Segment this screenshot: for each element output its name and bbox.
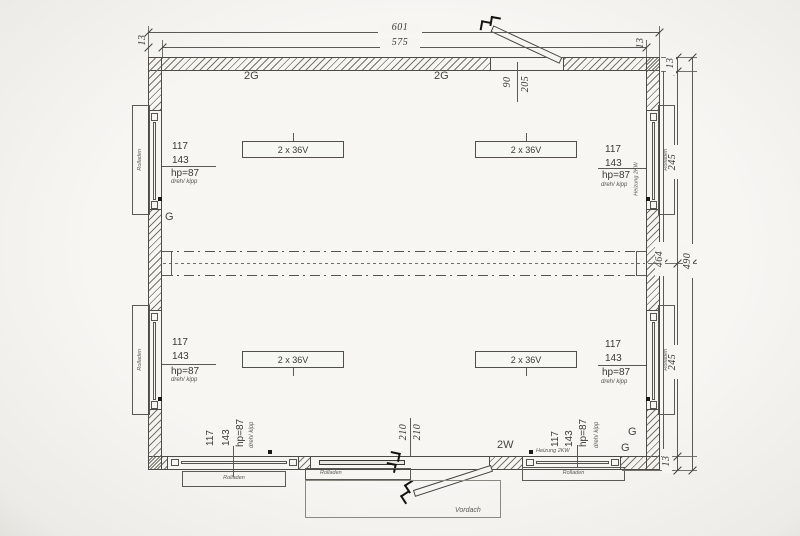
light-upper-right: 2 x 36V (475, 141, 577, 158)
window-glazing (652, 322, 655, 400)
rolladen-box-bottom-door: Rolladen (305, 468, 411, 480)
window-cap (650, 313, 657, 321)
window-parapet-label: hp=87 (602, 368, 630, 378)
window-type-label: dreh/ kipp (171, 377, 197, 383)
parapet-line (598, 365, 646, 366)
dim-right-lower: 245 (668, 345, 678, 379)
rolladen-box-bottom-right: Rolladen (522, 467, 625, 481)
axis-dashdot-bottom (163, 275, 645, 276)
window-left-upper (149, 110, 161, 210)
axis-dashdot-top (163, 251, 645, 252)
dim-door-top-height: 205 (521, 69, 531, 99)
window-glazing (536, 461, 609, 464)
dim-door-top-width: 90 (503, 69, 513, 95)
light-tick (293, 133, 294, 141)
window-height-label: 143 (565, 421, 575, 447)
room-label-2g-center: 2G (434, 71, 449, 82)
window-cap (151, 401, 158, 409)
dim-inner-height: 464 (655, 242, 665, 276)
dim-outer-width: 601 (378, 23, 422, 33)
window-parapet-label: hp=87 (602, 171, 630, 181)
window-cap (650, 113, 657, 121)
rolladen-label: Rolladen (320, 471, 342, 477)
dim-inner-width: 575 (380, 38, 420, 48)
light-label: 2 x 36V (511, 145, 542, 155)
rolladen-label: Rolladen (138, 149, 144, 171)
room-label-2g-left: 2G (244, 71, 259, 82)
window-cap (289, 459, 297, 466)
window-cap (171, 459, 179, 466)
dim-wall-thickness-top-left: 13 (138, 30, 148, 50)
light-upper-left: 2 x 36V (242, 141, 344, 158)
window-handle (646, 397, 650, 401)
window-height-label: 143 (172, 352, 189, 362)
dim-wall-thickness-top-right: 13 (636, 33, 646, 53)
sliding-door-mark (389, 451, 401, 462)
room-label-g-left: G (165, 212, 174, 223)
window-width-label: 117 (551, 421, 561, 447)
window-width-label: 117 (605, 145, 621, 155)
window-parapet-label: hp=87 (171, 367, 199, 377)
extension-line (622, 470, 697, 471)
window-glazing (153, 122, 156, 200)
window-handle (268, 450, 272, 454)
light-lower-left: 2 x 36V (242, 351, 344, 368)
heizung-label-bottom: Heizung 2KW (536, 449, 570, 455)
dim-line-door-bottom (410, 418, 411, 457)
rolladen-label: Rolladen (563, 471, 585, 477)
rolladen-box-left-lower: Rolladen (132, 305, 150, 415)
window-glazing (181, 461, 287, 464)
axis-bracket (162, 251, 171, 252)
rolladen-label: Rolladen (223, 476, 245, 482)
window-cap (650, 401, 657, 409)
window-glazing (652, 122, 655, 200)
rolladen-box-left-upper: Rolladen (132, 105, 150, 215)
window-type-label: dreh/ kipp (249, 412, 255, 448)
axis-dashed-mid (163, 263, 645, 264)
window-cap (151, 113, 158, 121)
window-handle (158, 397, 162, 401)
window-parapet-label: hp=87 (236, 413, 246, 447)
axis-bracket (637, 275, 646, 276)
window-handle (646, 197, 650, 201)
window-handle (158, 197, 162, 201)
window-height-label: 143 (222, 420, 232, 446)
window-height-label: 143 (172, 156, 189, 166)
dim-right-upper: 245 (668, 145, 678, 179)
window-parapet-label: hp=87 (171, 169, 199, 179)
window-width-label: 117 (172, 142, 188, 152)
window-center-line (577, 445, 578, 467)
parapet-line (162, 364, 216, 365)
window-cap (151, 313, 158, 321)
door-hinge-mark (480, 20, 492, 32)
window-width-label: 117 (206, 420, 216, 446)
floor-plan: Rolladen Rolladen Rolladen Rolladen Roll… (0, 0, 800, 536)
window-cap (151, 201, 158, 209)
heizung-label-right: Heizung 2KW (634, 140, 640, 196)
window-cap (611, 459, 619, 466)
rolladen-label: Rolladen (138, 349, 144, 371)
axis-bracket (162, 275, 171, 276)
window-center-line (233, 446, 234, 477)
light-tick (526, 133, 527, 141)
room-label-g-corner-lower: G (621, 443, 630, 454)
vordach-label: Vordach (455, 507, 481, 514)
light-label: 2 x 36V (511, 355, 542, 365)
dim-door-bottom-height: 210 (413, 417, 423, 447)
window-cap (650, 201, 657, 209)
room-label-2w: 2W (497, 440, 514, 451)
window-width-label: 117 (605, 340, 621, 350)
window-type-label: dreh/ kipp (594, 412, 600, 448)
window-height-label: 143 (605, 354, 622, 364)
axis-bracket (637, 251, 646, 252)
wall-top (148, 57, 660, 71)
dim-wall-thickness-right-bottom: 13 (662, 449, 672, 473)
dim-line-door-top (517, 62, 518, 102)
axis-bracket (171, 251, 172, 276)
window-handle (529, 450, 533, 454)
light-label: 2 x 36V (278, 355, 309, 365)
window-left-lower (149, 310, 161, 410)
light-tick (293, 368, 294, 376)
window-parapet-label: hp=87 (579, 413, 589, 447)
window-cap (526, 459, 534, 466)
light-label: 2 x 36V (278, 145, 309, 155)
rolladen-box-bottom-left: Rolladen (182, 471, 286, 487)
dim-door-bottom-width: 210 (399, 417, 409, 447)
window-type-label: dreh/ kipp (601, 379, 627, 385)
light-tick (526, 368, 527, 376)
dim-wall-thickness-right-top: 13 (666, 51, 676, 75)
window-type-label: dreh/ kipp (601, 182, 627, 188)
room-label-g-corner-upper: G (628, 427, 637, 438)
light-lower-right: 2 x 36V (475, 351, 577, 368)
dim-outer-height: 490 (683, 244, 693, 278)
window-width-label: 117 (172, 338, 188, 348)
window-type-label: dreh/ kipp (171, 179, 197, 185)
window-glazing (153, 322, 156, 400)
axis-bracket (636, 251, 637, 276)
parapet-line (162, 166, 216, 167)
